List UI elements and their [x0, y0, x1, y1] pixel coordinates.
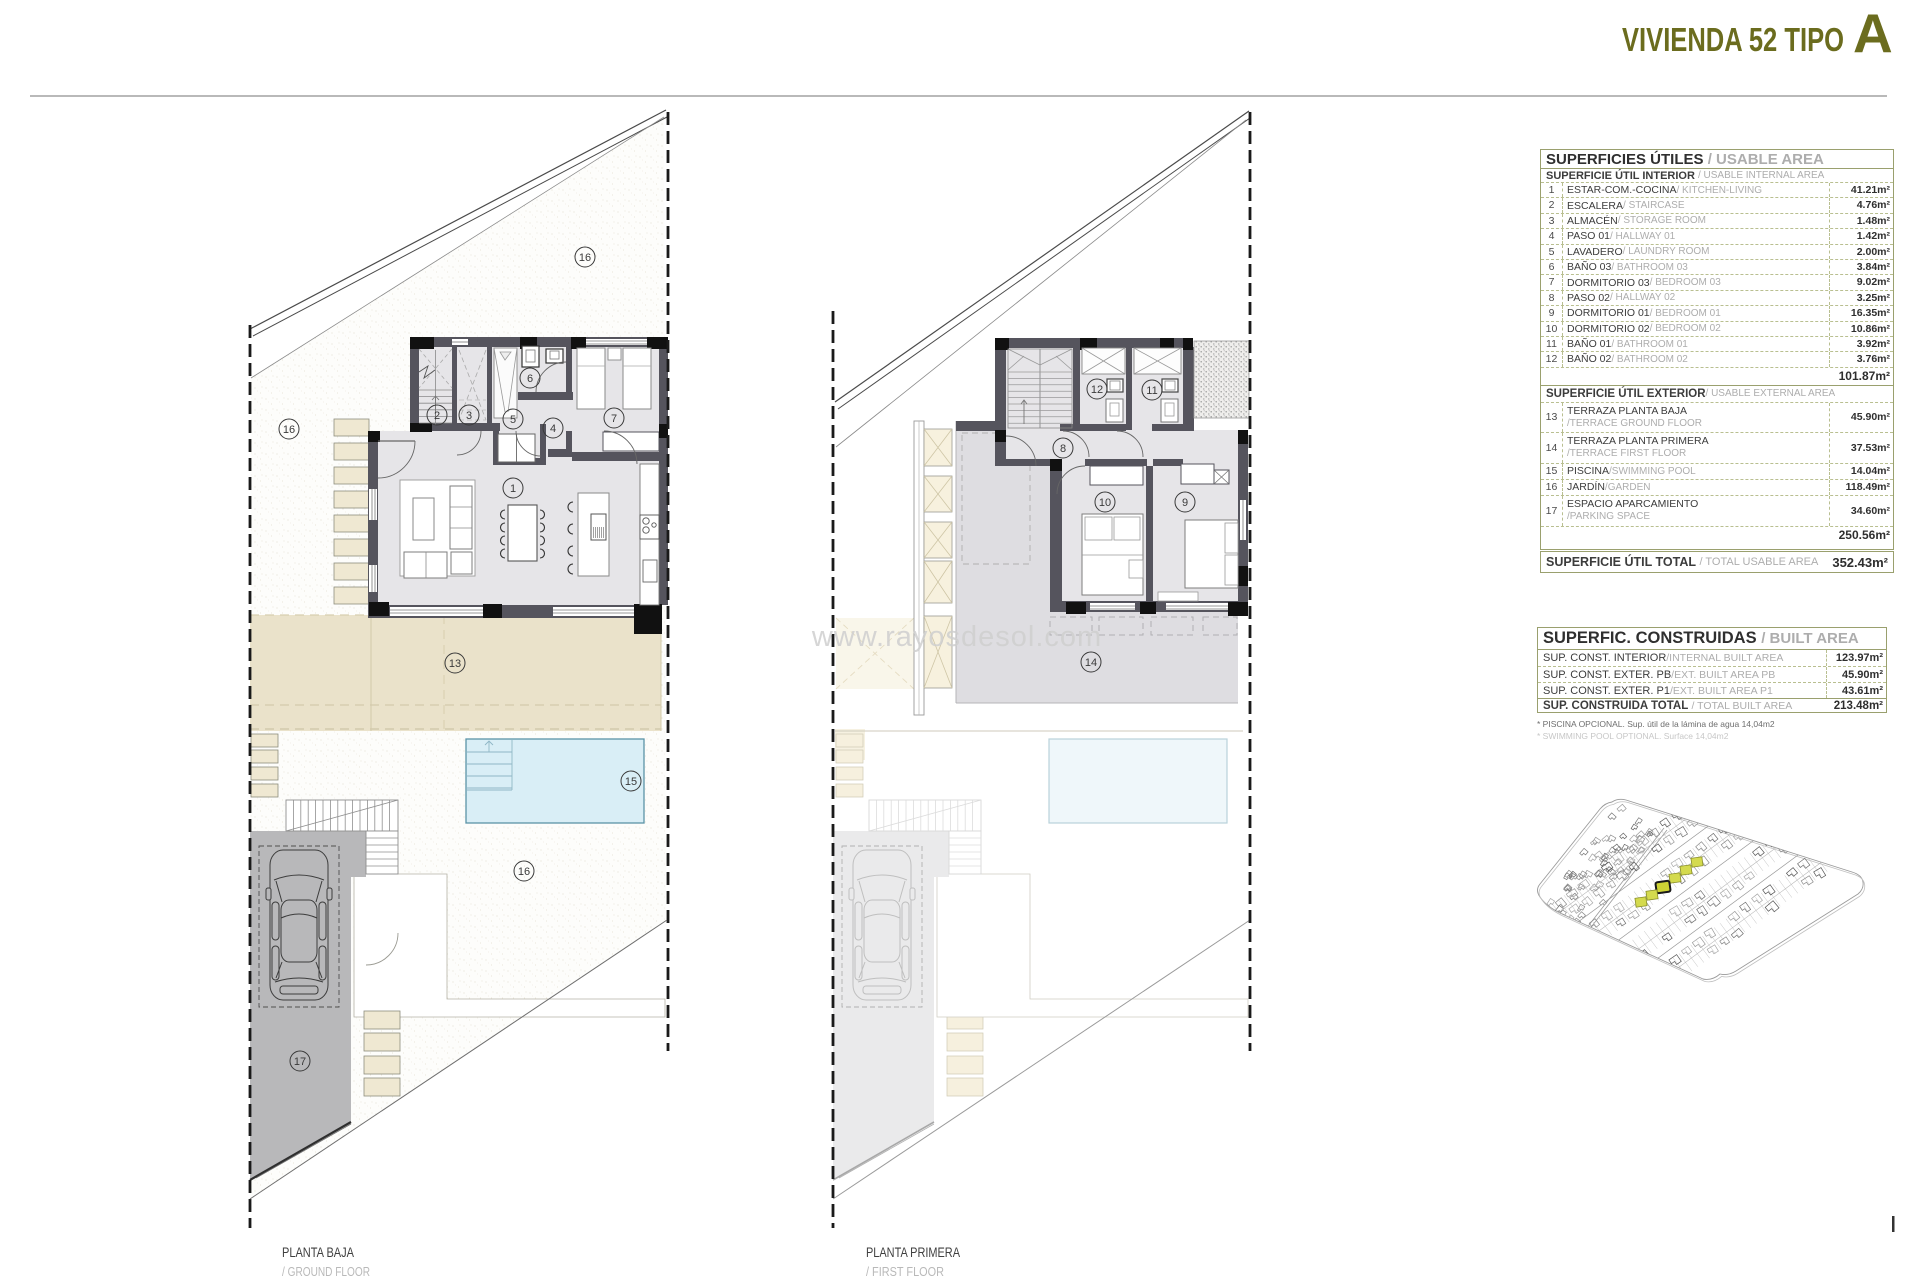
svg-text:6: 6 — [527, 373, 533, 385]
svg-text:10: 10 — [1099, 497, 1111, 509]
svg-text:www.rayosdesol.com: www.rayosdesol.com — [811, 621, 1102, 653]
svg-text:4: 4 — [550, 423, 556, 435]
svg-text:16: 16 — [518, 866, 530, 878]
svg-text:13: 13 — [449, 658, 461, 670]
svg-text:16: 16 — [579, 252, 591, 264]
svg-text:1: 1 — [510, 483, 516, 495]
svg-text:9: 9 — [1182, 497, 1188, 509]
svg-text:VIVIENDA 52 TIPO: VIVIENDA 52 TIPO — [1622, 21, 1844, 58]
svg-text:11: 11 — [1146, 385, 1157, 397]
svg-text:2: 2 — [434, 410, 440, 422]
svg-text:/ FIRST FLOOR: / FIRST FLOOR — [866, 1265, 944, 1279]
svg-text:16: 16 — [283, 424, 295, 436]
svg-text:7: 7 — [611, 413, 617, 425]
svg-text:PLANTA PRIMERA: PLANTA PRIMERA — [866, 1245, 960, 1260]
svg-text:5: 5 — [510, 414, 516, 426]
svg-text:3: 3 — [466, 410, 472, 422]
svg-text:17: 17 — [294, 1056, 306, 1068]
svg-text:8: 8 — [1060, 443, 1066, 455]
svg-text:12: 12 — [1091, 384, 1103, 396]
svg-text:14: 14 — [1085, 657, 1097, 669]
svg-text:15: 15 — [625, 776, 637, 788]
svg-text:PLANTA BAJA: PLANTA BAJA — [282, 1245, 354, 1260]
svg-text:/ GROUND FLOOR: / GROUND FLOOR — [282, 1265, 370, 1279]
svg-text:A: A — [1853, 2, 1893, 64]
